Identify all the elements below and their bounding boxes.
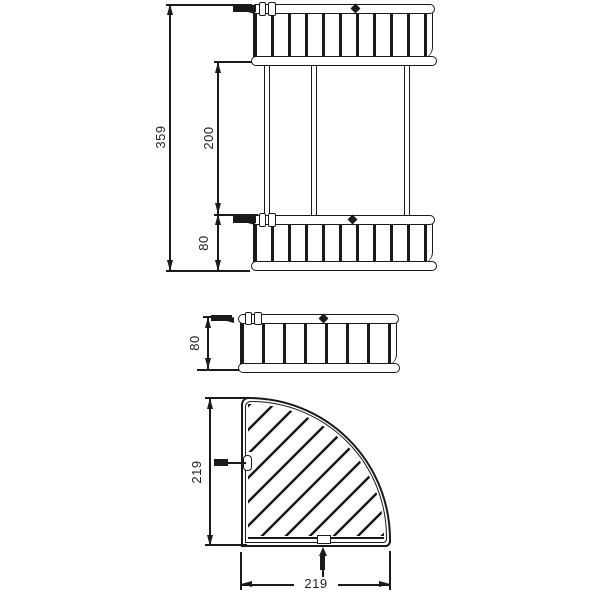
dimension-line-tier-spacing — [217, 62, 219, 214]
basket-end-wire — [424, 227, 426, 263]
tray-front-rim-line — [248, 537, 384, 539]
tab-stem — [228, 462, 246, 464]
dimension-arrow-up-icon — [215, 62, 221, 73]
dimension-label-side-height: 80 — [188, 323, 202, 363]
dimension-arrow-up-icon — [167, 4, 173, 15]
dimension-arrow-down-icon — [207, 535, 213, 546]
dimension-label-plan-width: 219 — [294, 577, 338, 592]
technical-drawing: 359 200 80 — [0, 0, 600, 600]
dimension-arrow-up-icon — [207, 398, 213, 409]
tray-wire-grid — [248, 404, 384, 536]
basket-end-wire — [424, 16, 426, 58]
mount-clip — [245, 312, 252, 325]
basket-top-rail — [251, 215, 435, 225]
basket-bottom-rim — [251, 261, 437, 271]
dimension-arrow-down-icon — [205, 358, 211, 369]
bracket-arrow-icon — [223, 317, 234, 323]
dimension-label-plan-depth: 219 — [190, 452, 204, 492]
mount-clip — [268, 213, 276, 227]
extension-line-bottom — [166, 270, 250, 272]
basket-bottom-rim — [251, 56, 437, 66]
dimension-arrow-up-icon — [215, 214, 221, 225]
dimension-arrow-right-icon — [379, 581, 390, 587]
mount-clip — [254, 312, 262, 325]
basket-wires — [253, 224, 433, 264]
bracket-arrow-icon — [244, 219, 255, 225]
mount-clip — [259, 2, 266, 16]
dimension-label-tier-spacing: 200 — [202, 118, 216, 158]
basket-bottom-rim — [238, 363, 400, 373]
rim-notch — [317, 535, 331, 544]
basket-wires — [240, 323, 397, 366]
connecting-rail — [404, 64, 410, 217]
basket-end-wire — [388, 326, 390, 364]
pin-arrow-icon — [319, 547, 327, 556]
dimension-line-total-height — [169, 4, 171, 271]
dimension-arrow-down-icon — [215, 203, 221, 214]
basket-top-rail — [251, 4, 435, 14]
bracket-arrow-icon — [244, 8, 255, 14]
mount-pin — [320, 556, 325, 570]
connecting-rail — [264, 64, 270, 217]
connecting-rail — [311, 64, 317, 217]
dimension-arrow-down-icon — [167, 260, 173, 271]
basket-wires — [253, 13, 433, 59]
dimension-arrow-left-icon — [241, 581, 252, 587]
dimension-label-tier-height: 80 — [197, 223, 211, 263]
dimension-arrow-down-icon — [215, 260, 221, 271]
dimension-label-total-height: 359 — [154, 117, 168, 157]
dimension-line-plan-depth — [209, 398, 211, 546]
mount-clip — [268, 2, 276, 16]
mount-clip — [259, 213, 266, 227]
extension-line-bottom — [197, 369, 240, 371]
wall-mount-tab — [214, 459, 228, 466]
